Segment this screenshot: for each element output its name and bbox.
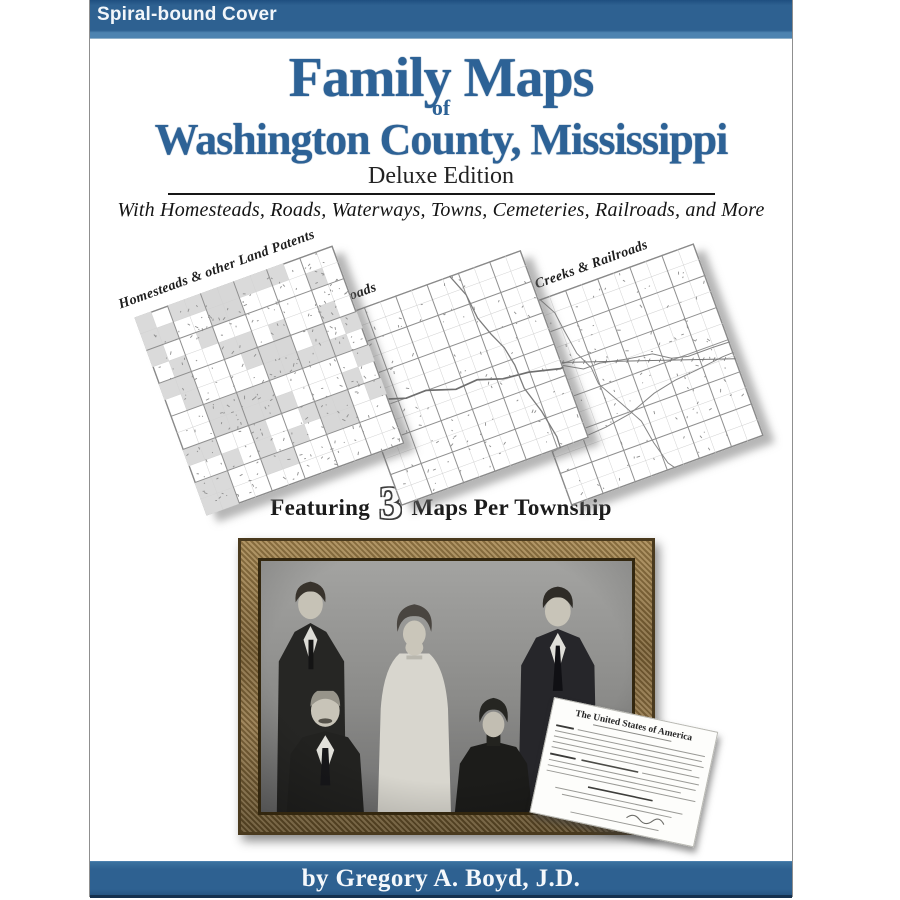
title-block: Family Maps of Washington County, Missis… <box>90 50 792 222</box>
sample-maps-zone: Homesteads & other Land Patents Roads Ri… <box>90 250 792 505</box>
featuring-prefix: Featuring <box>270 495 370 520</box>
edition-label: Deluxe Edition <box>90 164 792 188</box>
spiral-binding-bar: Spiral-bound Cover <box>90 0 792 39</box>
book-cover: Spiral-bound Cover Family Maps of Washin… <box>89 0 793 897</box>
tagline: With Homesteads, Roads, Waterways, Towns… <box>90 199 792 222</box>
author-bar: by Gregory A. Boyd, J.D. <box>90 861 792 898</box>
author-byline: by Gregory A. Boyd, J.D. <box>90 862 792 895</box>
cover-type-badge: Spiral-bound Cover <box>90 0 792 26</box>
title-divider <box>168 193 715 195</box>
title-line2: Washington County, Mississippi <box>90 118 792 162</box>
